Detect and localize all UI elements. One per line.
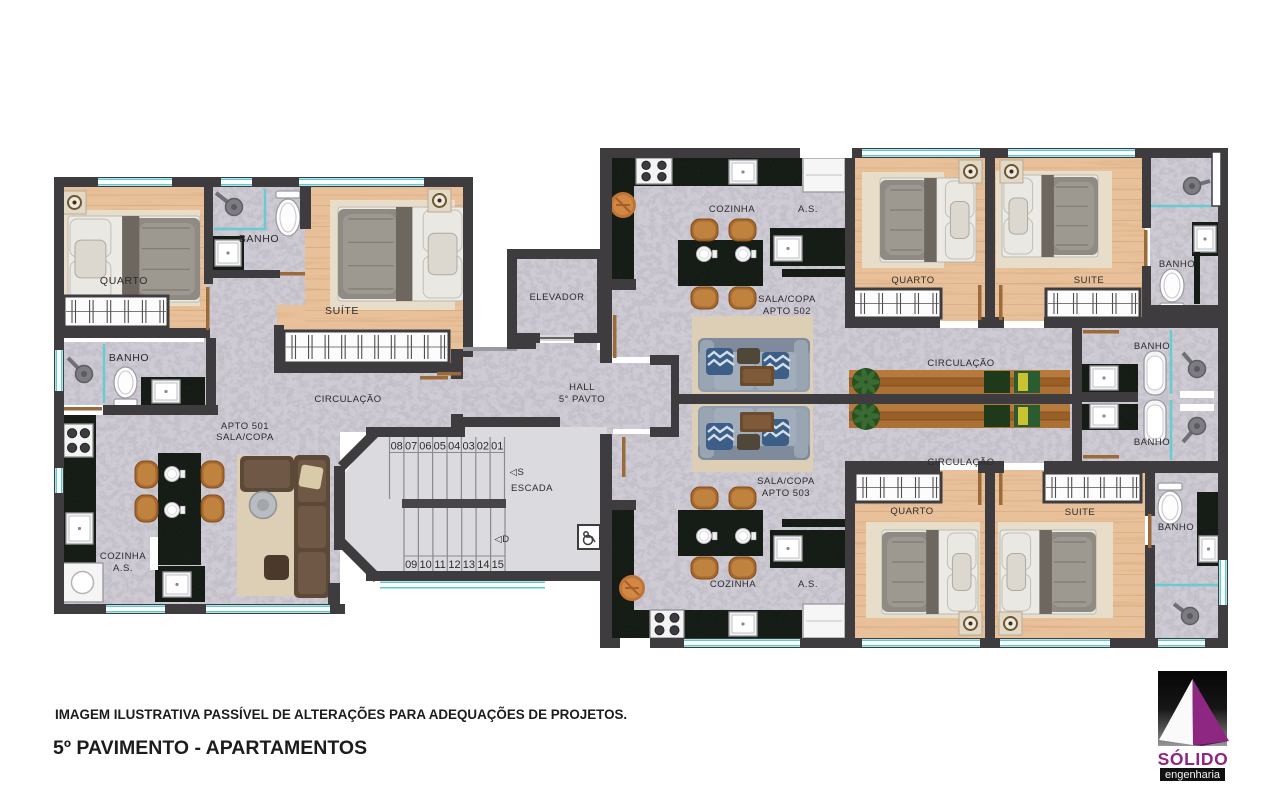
svg-text:BANHO: BANHO	[109, 352, 149, 364]
svg-text:SALA/COPA: SALA/COPA	[757, 476, 815, 487]
svg-text:A.S.: A.S.	[798, 204, 818, 215]
svg-text:ELEVADOR: ELEVADOR	[529, 292, 584, 303]
svg-text:11: 11	[434, 559, 445, 571]
svg-text:BANHO: BANHO	[1158, 522, 1194, 533]
svg-text:APTO 501: APTO 501	[221, 421, 269, 432]
svg-text:◁S: ◁S	[510, 467, 525, 478]
svg-text:10: 10	[419, 559, 431, 571]
svg-text:BANHO: BANHO	[239, 233, 279, 245]
svg-text:A.S.: A.S.	[113, 563, 133, 574]
svg-text:CIRCULAÇÃO: CIRCULAÇÃO	[927, 457, 994, 468]
svg-text:IMAGEM ILUSTRATIVA PASSÍVEL DE: IMAGEM ILUSTRATIVA PASSÍVEL DE ALTERAÇÕE…	[55, 707, 627, 722]
svg-text:02: 02	[477, 441, 489, 453]
svg-text:QUARTO: QUARTO	[100, 275, 148, 287]
svg-text:SALA/COPA: SALA/COPA	[758, 294, 816, 305]
svg-text:SALA/COPA: SALA/COPA	[216, 432, 274, 443]
svg-text:QUARTO: QUARTO	[891, 275, 934, 286]
svg-text:06: 06	[419, 441, 431, 453]
svg-text:QUARTO: QUARTO	[890, 506, 933, 517]
svg-text:A.S.: A.S.	[798, 579, 818, 590]
svg-text:CIRCULAÇÃO: CIRCULAÇÃO	[314, 394, 381, 405]
svg-text:09: 09	[405, 559, 417, 571]
svg-text:15: 15	[492, 559, 504, 571]
svg-text:5° PAVTO: 5° PAVTO	[559, 394, 605, 405]
svg-text:BANHO: BANHO	[1134, 341, 1170, 352]
svg-text:08: 08	[391, 441, 403, 453]
svg-text:05: 05	[434, 441, 446, 453]
svg-text:COZINHA: COZINHA	[100, 551, 146, 562]
svg-text:BANHO: BANHO	[1134, 437, 1170, 448]
svg-text:COZINHA: COZINHA	[710, 579, 756, 590]
svg-text:13: 13	[463, 559, 475, 571]
svg-text:BANHO: BANHO	[1159, 259, 1195, 270]
svg-text:◁D: ◁D	[494, 534, 509, 545]
svg-text:14: 14	[477, 559, 489, 571]
svg-text:07: 07	[405, 441, 417, 453]
svg-text:APTO 502: APTO 502	[763, 306, 811, 317]
svg-text:12: 12	[448, 559, 460, 571]
svg-text:HALL: HALL	[569, 382, 595, 393]
svg-text:04: 04	[448, 441, 460, 453]
svg-text:03: 03	[462, 441, 474, 453]
svg-text:01: 01	[491, 441, 503, 453]
svg-text:engenharia: engenharia	[1165, 769, 1221, 781]
svg-text:COZINHA: COZINHA	[709, 204, 755, 215]
svg-text:SUÍTE: SUÍTE	[325, 304, 359, 317]
svg-text:ESCADA: ESCADA	[511, 483, 553, 494]
svg-text:APTO 503: APTO 503	[762, 488, 810, 499]
svg-text:SUITE: SUITE	[1074, 275, 1104, 286]
svg-text:CIRCULAÇÃO: CIRCULAÇÃO	[927, 358, 994, 369]
svg-text:SÓLIDO: SÓLIDO	[1158, 748, 1229, 769]
svg-text:SUITE: SUITE	[1065, 507, 1095, 518]
svg-text:5º PAVIMENTO - APARTAMENTOS: 5º PAVIMENTO - APARTAMENTOS	[53, 737, 367, 759]
